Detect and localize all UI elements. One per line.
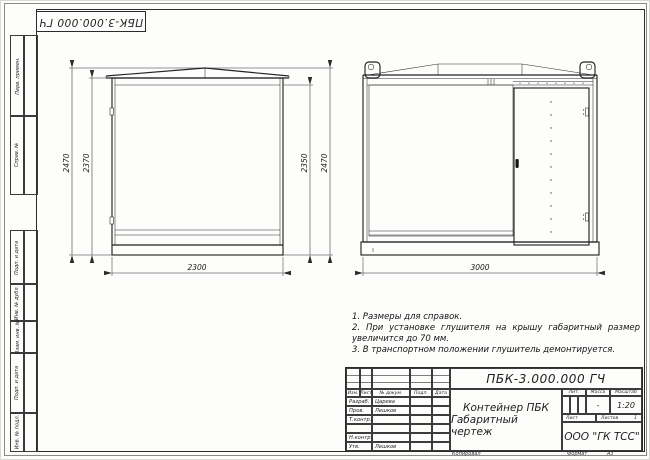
dim-side-left-outer: 2470 [62,153,71,172]
tb-company: ООО "ГК ТСС" [562,422,642,451]
margin-label: Подп. и дата [15,366,21,400]
format-value: А3 [607,451,614,457]
door-hinges [583,108,589,221]
tb-mass-label: Масса [586,389,610,396]
margin-label: Перв. примен. [15,57,21,95]
tb-sheet: Лист [562,414,596,422]
margin-label: Справ. № [15,143,21,167]
tb-date [432,397,450,406]
tb-lit-sub [578,396,586,414]
margin-label: Взам. инв. № [15,320,21,354]
tb-change-cell [410,368,432,389]
tb-date [432,415,450,424]
rotated-doc-number-stamp: ПБК-3.000.000 ГЧ [36,11,146,32]
tb-role-tkontr: Т.контр. [346,415,372,424]
tb-name-utv: Лешков [372,442,410,451]
tb-col-list: Лист [360,389,372,397]
tb-date [432,406,450,415]
tb-lit-sub [570,396,578,414]
margin-graph-blank [23,320,38,354]
note-3: 3. В транспортном положении глушитель де… [352,345,640,356]
hinge [110,108,114,115]
tb-scale-value: 1:20 [610,396,642,414]
tb-lit-label: Лит. [562,389,586,396]
format-label: Формат [567,451,587,457]
door-rivet-column [550,101,551,232]
tb-col-podp: Подп. [410,389,432,397]
margin-graph-blank [23,352,38,414]
tb-date [432,433,450,442]
dim-side-right-outer: 2470 [320,153,329,172]
dim-side-width: 2300 [187,263,206,272]
tb-role-prov: Пров. [346,406,372,415]
tb-col-izm: Изм. [346,389,360,397]
drawing-notes: 1. Размеры для справок. 2. При установке… [352,312,640,356]
tb-mass-value: - [586,396,610,414]
tb-change-cell [432,368,450,389]
rotated-doc-number-text: ПБК-3.000.000 ГЧ [39,16,143,28]
note-1: 1. Размеры для справок. [352,312,640,323]
tb-sig [410,442,432,451]
container-front-view [361,62,599,255]
tb-product-name: Контейнер ПБК [463,402,549,414]
tb-date [432,424,450,433]
front-view-dimensions: 3000 [363,257,597,276]
tb-sig [410,397,432,406]
tb-change-cell [360,368,372,389]
hinge [110,217,114,224]
margin-label: Подп. и дата [15,240,21,274]
tb-lit-sub [562,396,570,414]
door-handle [516,159,519,168]
tb-doc-type: Габаритный чертеж [451,414,561,438]
drawing-views: 2470 2370 2350 2470 2300 [40,45,640,305]
tb-sig [410,415,432,424]
container-side-view [106,68,289,255]
note-2: 2. При установке глушителя на крышу габа… [352,323,640,345]
tb-role-nkontr: Н.контр. [346,433,372,442]
tb-role-blank [346,424,372,433]
tb-sheets-label: Листов [601,416,618,421]
tb-name-prov: Лешков [372,406,410,415]
title-block: Изм. Лист № докум. Подп. Дата Разраб. Ца… [345,367,643,452]
tb-col-dokum: № докум. [372,389,410,397]
copied-label: Копировал [452,451,481,457]
margin-label: Инв. № дубл. [15,285,21,319]
drawing-sheet: Перв. примен. Справ. № Подп. и дата Инв.… [0,0,650,460]
margin-graph-blank [23,35,38,117]
tb-scale-label: Масштаб [610,389,642,396]
tb-sig [410,424,432,433]
margin-graph-blank [23,412,38,452]
tb-document-title: Контейнер ПБК Габаритный чертеж [450,389,562,451]
margin-graph-blank [23,115,38,195]
tb-col-data: Дата [432,389,450,397]
dim-side-right-inner: 2350 [300,153,309,172]
tb-name-razrab: Царева [372,397,410,406]
margin-label: Инв. № подл. [15,415,21,450]
margin-graph-blank [23,230,38,285]
tb-doc-number: ПБК-3.000.000 ГЧ [450,368,642,389]
dim-front-width: 3000 [470,263,489,272]
tb-sig [410,433,432,442]
tb-change-cell [346,368,360,389]
tb-name-nkontr [372,433,410,442]
tb-date [432,442,450,451]
tb-name-tkontr [372,415,410,424]
tb-change-cell [372,368,410,389]
dim-side-left-inner: 2370 [82,153,91,172]
tb-name-blank [372,424,410,433]
tb-sheets: Листов 1 [596,414,642,422]
tb-role-utv: Утв. [346,442,372,451]
margin-graph-blank [23,283,38,322]
tb-sig [410,406,432,415]
container-door [514,88,589,245]
tb-role-razrab: Разраб. [346,397,372,406]
rivet-row-top [519,83,583,84]
below-frame-labels: Копировал Формат А3 [0,451,650,460]
tb-sheets-value: 1 [634,416,637,421]
